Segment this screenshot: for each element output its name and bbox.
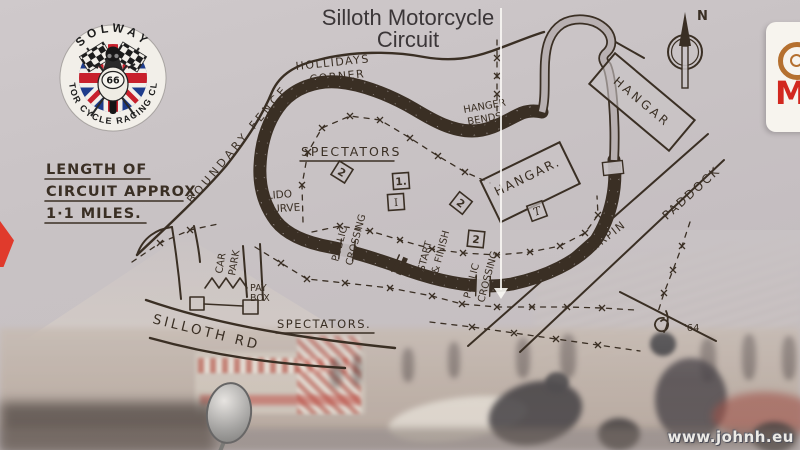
label-spectators-road: SPECTATORS. xyxy=(277,317,371,331)
club-badge: 66 SOLWAY MOTOR CYCLE RACING CLUB xyxy=(60,20,166,131)
compass-needle-icon xyxy=(679,12,691,46)
enclosure-post: 2 xyxy=(450,192,472,214)
circuit-map-drawing: HANGAR HANGAR. T 2 1. I 2 2 xyxy=(0,0,800,450)
svg-text:1·1 MILES.: 1·1 MILES. xyxy=(46,206,142,222)
label-car-park: PARK xyxy=(227,249,242,277)
label-lido-curve: LIDO xyxy=(266,188,292,202)
plate-number: 66 xyxy=(106,76,120,87)
svg-text:CIRCUIT APPROX: CIRCUIT APPROX xyxy=(46,184,197,200)
enclosure-post: 2 xyxy=(331,161,353,183)
compass-north-label: N xyxy=(697,9,708,24)
car-park-zigzag xyxy=(205,278,247,288)
svg-text:I: I xyxy=(394,197,399,209)
length-note: LENGTH OF CIRCUIT APPROX 1·1 MILES. xyxy=(45,162,197,223)
svg-text:1.: 1. xyxy=(395,176,407,189)
svg-text:2: 2 xyxy=(472,234,481,247)
compass-rose: N xyxy=(668,9,708,88)
road-box xyxy=(190,297,204,310)
label-lido-curve: CURVE xyxy=(264,202,300,216)
enclosure-post: 2 xyxy=(467,230,485,248)
label-spectators-infield: SPECTATORS xyxy=(301,144,401,159)
label-start-finish: & FINISH xyxy=(430,229,452,274)
label-year-mark: '64 xyxy=(684,323,699,334)
svg-text:LENGTH OF: LENGTH OF xyxy=(46,162,147,178)
label-paddock: PADDOCK xyxy=(660,163,724,222)
watermark: www.johnh.eu xyxy=(668,428,794,446)
enclosure-post: 1. xyxy=(392,172,409,189)
page-title: Silloth Motorcycle Circuit xyxy=(322,5,494,52)
track-crossing-box xyxy=(602,160,623,175)
label-pay-box: BOX xyxy=(250,293,270,304)
enclosure-post: I xyxy=(387,193,404,210)
label-car-park: CAR xyxy=(214,252,228,274)
sponsor-card: M xyxy=(766,22,800,132)
sponsor-letter: M xyxy=(775,74,800,112)
hanging-string xyxy=(500,8,502,290)
circuit-display-board: HANGAR HANGAR. T 2 1. I 2 2 xyxy=(0,0,800,450)
string-tag xyxy=(494,288,508,299)
tyre-logo-icon xyxy=(790,54,800,67)
label-boundary-fence: BOUNDARY FENCE xyxy=(184,82,291,206)
title-line2: Circuit xyxy=(377,27,439,52)
